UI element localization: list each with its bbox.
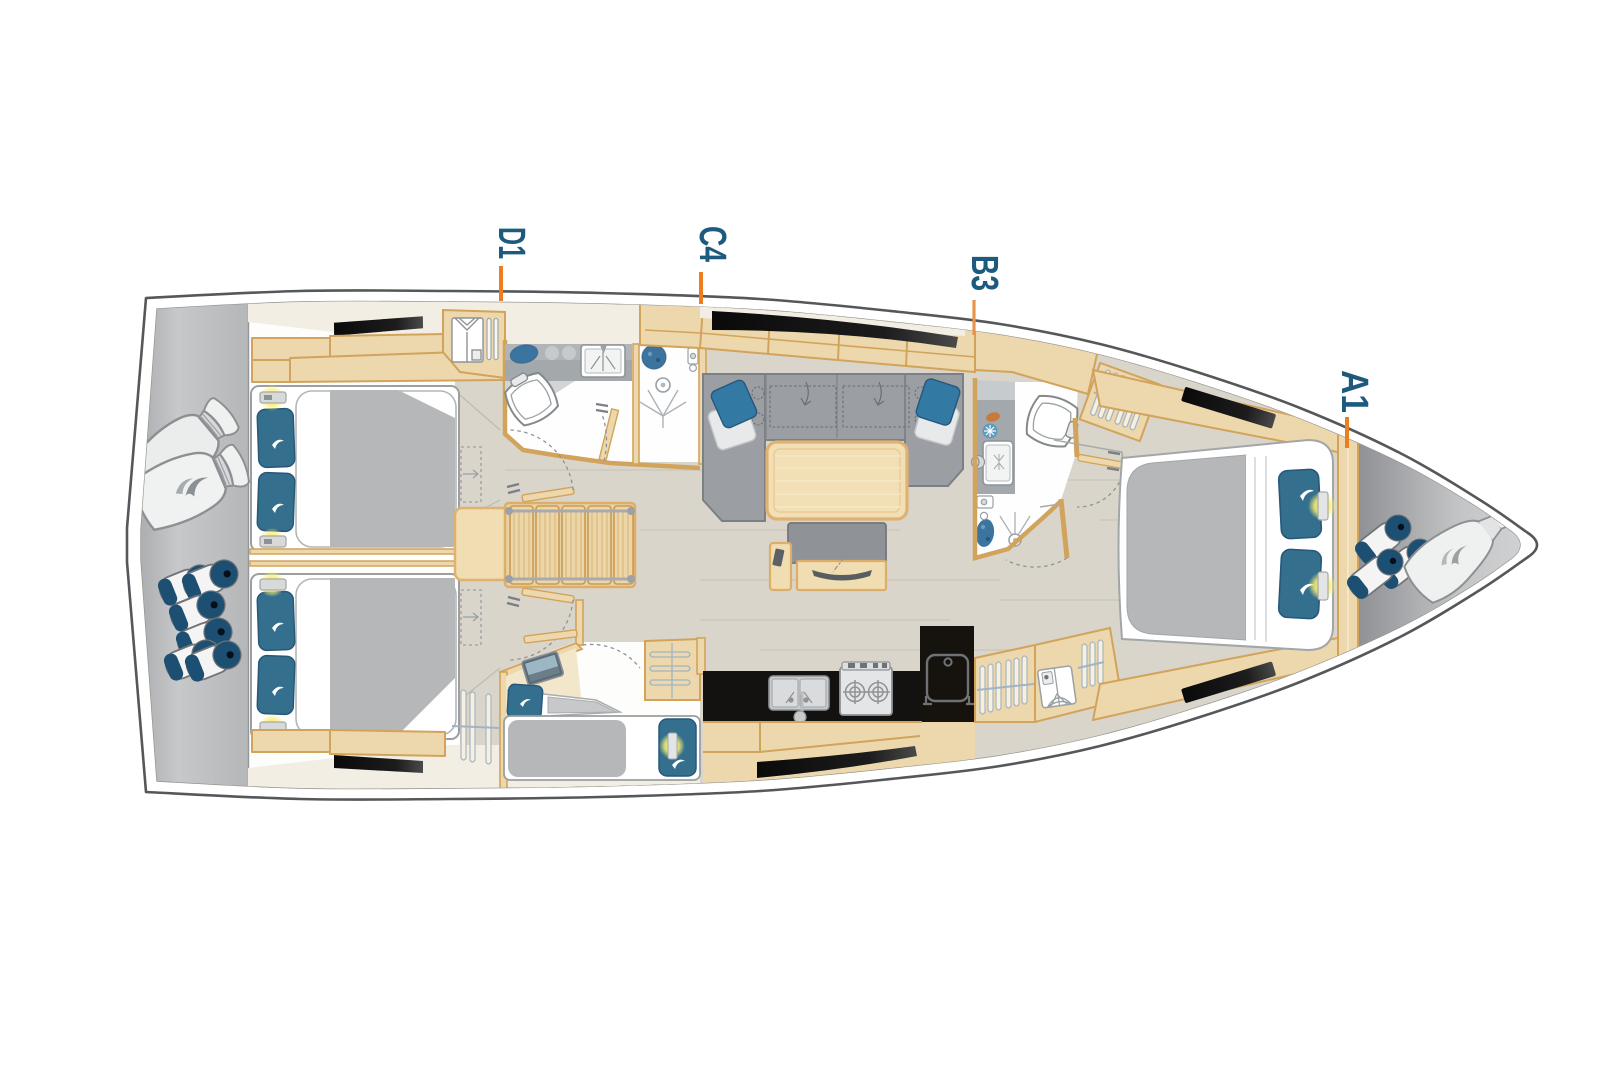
svg-text:A1: A1 — [1333, 370, 1375, 413]
svg-text:D1: D1 — [490, 227, 532, 259]
svg-text:B3: B3 — [963, 255, 1005, 291]
svg-text:C4: C4 — [691, 226, 733, 262]
